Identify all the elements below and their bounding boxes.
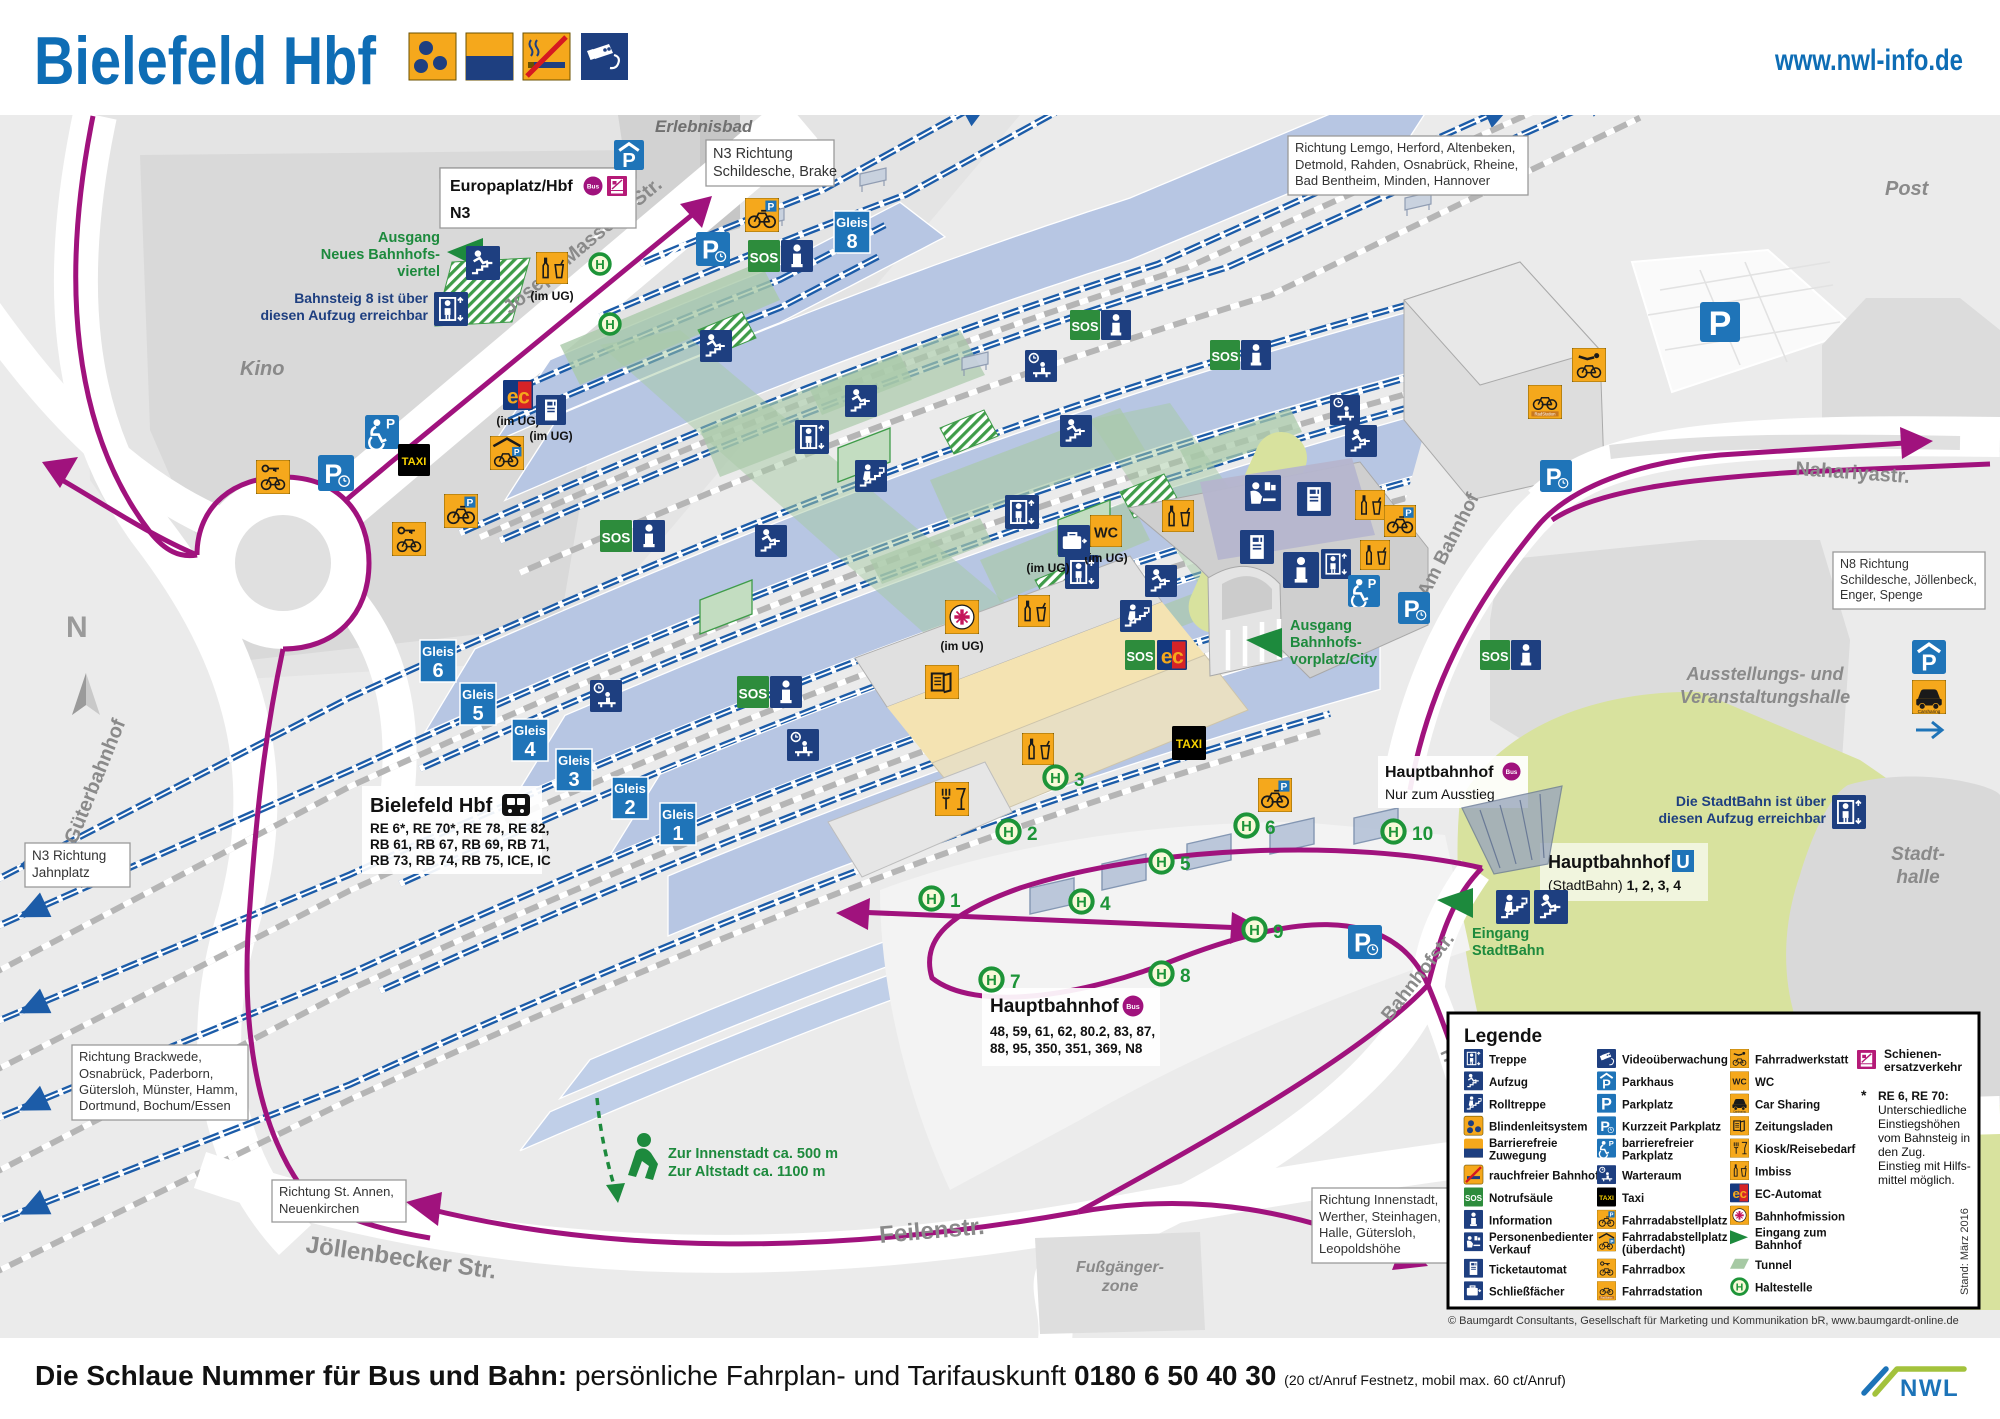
svg-text:6: 6	[1265, 818, 1276, 839]
svg-text:Ticketautomat: Ticketautomat	[1489, 1264, 1567, 1276]
svg-text:Bielefeld Hbf: Bielefeld Hbf	[370, 795, 493, 817]
svg-text:8: 8	[846, 231, 857, 253]
svg-text:Die StadtBahn ist über: Die StadtBahn ist über	[1676, 793, 1827, 809]
svg-text:Neuenkirchen: Neuenkirchen	[279, 1201, 359, 1216]
svg-text:Fahrradabstellplatz: Fahrradabstellplatz	[1622, 1232, 1728, 1244]
svg-text:EC-Automat: EC-Automat	[1755, 1189, 1822, 1201]
svg-text:Gleis: Gleis	[514, 723, 546, 738]
svg-text:WC: WC	[1755, 1077, 1774, 1089]
svg-text:Aufzug: Aufzug	[1489, 1077, 1528, 1089]
svg-text:Gleis: Gleis	[836, 215, 868, 230]
svg-text:Nur zum Ausstieg: Nur zum Ausstieg	[1385, 786, 1495, 802]
svg-text:© Baumgardt Consultants, Gesel: © Baumgardt Consultants, Gesellschaft fü…	[1448, 1315, 1959, 1327]
svg-text:Bahnhof: Bahnhof	[1755, 1240, 1802, 1252]
svg-text:4: 4	[524, 739, 536, 761]
svg-text:Zeitungsladen: Zeitungsladen	[1755, 1122, 1833, 1134]
svg-text:Legende: Legende	[1464, 1026, 1542, 1047]
svg-text:(im UG): (im UG)	[1026, 561, 1069, 575]
svg-text:Richtung Innenstadt,: Richtung Innenstadt,	[1319, 1192, 1438, 1207]
svg-text:Veranstaltungshalle: Veranstaltungshalle	[1680, 687, 1850, 707]
svg-text:Halle, Gütersloh,: Halle, Gütersloh,	[1319, 1225, 1416, 1240]
svg-text:Fußgänger-: Fußgänger-	[1076, 1259, 1164, 1276]
svg-text:www.nwl-info.de: www.nwl-info.de	[1774, 44, 1963, 77]
svg-text:zone: zone	[1101, 1278, 1139, 1295]
svg-text:Imbiss: Imbiss	[1755, 1167, 1791, 1179]
svg-text:Erlebnisbad: Erlebnisbad	[655, 117, 753, 136]
svg-text:Parkplatz: Parkplatz	[1622, 1151, 1673, 1163]
svg-text:Schildesche, Brake: Schildesche, Brake	[713, 164, 837, 180]
svg-text:mittel möglich.: mittel möglich.	[1878, 1173, 1955, 1187]
svg-text:Bahnsteig 8 ist über: Bahnsteig 8 ist über	[294, 290, 428, 306]
svg-text:Treppe: Treppe	[1489, 1055, 1527, 1067]
svg-text:(im UG): (im UG)	[530, 289, 573, 303]
svg-text:vorplatz/City: vorplatz/City	[1290, 652, 1377, 668]
svg-text:Gleis: Gleis	[422, 644, 454, 659]
svg-text:Eingang: Eingang	[1472, 926, 1529, 942]
svg-text:Hauptbahnhof: Hauptbahnhof	[990, 996, 1119, 1017]
svg-text:Hauptbahnhof: Hauptbahnhof	[1385, 764, 1494, 781]
svg-text:Eingang zum: Eingang zum	[1755, 1228, 1827, 1240]
svg-text:1: 1	[950, 891, 961, 912]
svg-text:Kiosk/Reisebedarf: Kiosk/Reisebedarf	[1755, 1144, 1856, 1156]
svg-text:10: 10	[1412, 824, 1433, 845]
svg-text:Leopoldshöhe: Leopoldshöhe	[1319, 1241, 1401, 1256]
svg-text:Notrufsäule: Notrufsäule	[1489, 1193, 1553, 1205]
svg-text:1: 1	[672, 823, 683, 845]
svg-text:5: 5	[472, 703, 483, 725]
svg-text:Schienen-: Schienen-	[1884, 1047, 1941, 1061]
svg-text:Fahrradabstellplatz: Fahrradabstellplatz	[1622, 1215, 1728, 1227]
svg-text:rauchfreier Bahnhof: rauchfreier Bahnhof	[1489, 1171, 1599, 1183]
svg-text:Bielefeld Hbf: Bielefeld Hbf	[34, 23, 376, 99]
svg-text:barrierefreier: barrierefreier	[1622, 1138, 1694, 1150]
svg-text:Fahrradstation: Fahrradstation	[1622, 1287, 1703, 1299]
svg-text:den Zug.: den Zug.	[1878, 1145, 1925, 1159]
svg-text:Schließfächer: Schließfächer	[1489, 1287, 1565, 1299]
svg-text:Barrierefreie: Barrierefreie	[1489, 1138, 1557, 1150]
svg-text:Tunnel: Tunnel	[1755, 1260, 1792, 1272]
svg-text:5: 5	[1180, 854, 1191, 875]
svg-text:(im UG): (im UG)	[940, 639, 983, 653]
svg-text:Parkhaus: Parkhaus	[1622, 1077, 1674, 1089]
svg-text:88, 95, 350, 351, 369, N8: 88, 95, 350, 351, 369, N8	[990, 1041, 1143, 1056]
svg-text:diesen Aufzug erreichbar: diesen Aufzug erreichbar	[1658, 810, 1826, 826]
svg-text:Einstieg mit Hilfs-: Einstieg mit Hilfs-	[1878, 1159, 1971, 1173]
svg-text:Bahnhofs-: Bahnhofs-	[1290, 635, 1362, 651]
svg-text:StadtBahn: StadtBahn	[1472, 943, 1545, 959]
svg-text:RE 6, RE 70:: RE 6, RE 70:	[1878, 1089, 1949, 1103]
svg-text:Hauptbahnhof: Hauptbahnhof	[1548, 852, 1671, 872]
svg-text:Warteraum: Warteraum	[1622, 1171, 1682, 1183]
svg-text:Ausgang: Ausgang	[1290, 618, 1352, 634]
svg-text:Zuwegung: Zuwegung	[1489, 1151, 1547, 1163]
svg-text:Haltestelle: Haltestelle	[1755, 1283, 1813, 1295]
svg-text:Osnabrück, Paderborn,: Osnabrück, Paderborn,	[79, 1066, 213, 1081]
svg-text:Jahnplatz: Jahnplatz	[32, 865, 90, 880]
svg-text:Einstiegshöhen: Einstiegshöhen	[1878, 1117, 1960, 1131]
svg-text:halle: halle	[1896, 867, 1940, 888]
svg-text:Car Sharing: Car Sharing	[1755, 1099, 1820, 1111]
svg-text:48, 59, 61, 62, 80.2, 83, 87,: 48, 59, 61, 62, 80.2, 83, 87,	[990, 1024, 1155, 1039]
svg-text:(im UG): (im UG)	[1084, 551, 1127, 565]
svg-text:N: N	[66, 611, 88, 644]
svg-text:9: 9	[1273, 922, 1284, 943]
svg-text:Personenbedienter: Personenbedienter	[1489, 1232, 1594, 1244]
svg-text:Parkplatz: Parkplatz	[1622, 1099, 1673, 1111]
svg-text:RB 73, RB 74, RB 75, ICE, IC: RB 73, RB 74, RB 75, ICE, IC	[370, 853, 551, 868]
svg-text:Gleis: Gleis	[614, 781, 646, 796]
svg-text:Unterschiedliche: Unterschiedliche	[1878, 1103, 1967, 1117]
svg-text:Kurzzeit Parkplatz: Kurzzeit Parkplatz	[1622, 1122, 1721, 1134]
svg-text:Europaplatz/Hbf: Europaplatz/Hbf	[450, 178, 573, 195]
svg-text:Richtung Lemgo, Herford, Alten: Richtung Lemgo, Herford, Altenbeken,	[1295, 140, 1515, 155]
svg-text:Stand: März 2016: Stand: März 2016	[1959, 1208, 1971, 1295]
svg-text:N3: N3	[450, 205, 471, 222]
svg-text:RB 61, RB 67, RB 69, RB 71,: RB 61, RB 67, RB 69, RB 71,	[370, 837, 549, 852]
svg-text:Gleis: Gleis	[662, 807, 694, 822]
svg-text:2: 2	[624, 797, 635, 819]
svg-text:2: 2	[1027, 824, 1038, 845]
svg-text:Ausstellungs- und: Ausstellungs- und	[1686, 664, 1845, 684]
svg-text:Rolltreppe: Rolltreppe	[1489, 1099, 1546, 1111]
svg-text:Taxi: Taxi	[1622, 1193, 1644, 1205]
svg-text:3: 3	[568, 769, 579, 791]
svg-text:*: *	[1861, 1087, 1867, 1103]
svg-text:Post: Post	[1885, 178, 1930, 200]
svg-text:Gütersloh, Münster, Hamm,: Gütersloh, Münster, Hamm,	[79, 1082, 238, 1097]
svg-text:Richtung Brackwede,: Richtung Brackwede,	[79, 1049, 202, 1064]
svg-text:N3 Richtung: N3 Richtung	[713, 146, 793, 162]
svg-text:Blindenleitsystem: Blindenleitsystem	[1489, 1122, 1587, 1134]
svg-text:(überdacht): (überdacht)	[1622, 1244, 1685, 1256]
svg-text:Verkauf: Verkauf	[1489, 1244, 1531, 1256]
svg-text:Kino: Kino	[240, 358, 284, 380]
svg-text:Stadt-: Stadt-	[1891, 844, 1945, 865]
svg-text:Zur Altstadt ca. 1100 m: Zur Altstadt ca. 1100 m	[668, 1164, 825, 1180]
svg-text:Gleis: Gleis	[462, 687, 494, 702]
svg-text:Detmold, Rahden, Osnabrück, Rh: Detmold, Rahden, Osnabrück, Rheine,	[1295, 157, 1518, 172]
svg-text:3: 3	[1074, 770, 1085, 791]
svg-text:Neues Bahnhofs-: Neues Bahnhofs-	[321, 247, 440, 263]
svg-text:Fahrradwerkstatt: Fahrradwerkstatt	[1755, 1055, 1848, 1067]
svg-text:NWL: NWL	[1900, 1375, 1959, 1402]
svg-text:N3 Richtung: N3 Richtung	[32, 848, 106, 863]
svg-text:Enger, Spenge: Enger, Spenge	[1840, 588, 1923, 602]
svg-text:ersatzverkehr: ersatzverkehr	[1884, 1060, 1962, 1074]
svg-text:(im UG): (im UG)	[496, 414, 539, 428]
svg-text:Richtung St. Annen,: Richtung St. Annen,	[279, 1184, 394, 1199]
svg-text:Ausgang: Ausgang	[378, 230, 440, 246]
svg-text:Videoüberwachung: Videoüberwachung	[1622, 1055, 1728, 1067]
svg-text:Dortmund, Bochum/Essen: Dortmund, Bochum/Essen	[79, 1098, 231, 1113]
svg-text:(im UG): (im UG)	[529, 429, 572, 443]
svg-text:viertel: viertel	[397, 264, 440, 280]
svg-text:RE 6*, RE 70*, RE 78, RE 82,: RE 6*, RE 70*, RE 78, RE 82,	[370, 821, 549, 836]
svg-text:Fahrradbox: Fahrradbox	[1622, 1264, 1686, 1276]
svg-text:4: 4	[1100, 894, 1111, 915]
svg-text:7: 7	[1010, 972, 1021, 993]
svg-text:vom Bahnsteig in: vom Bahnsteig in	[1878, 1131, 1970, 1145]
svg-text:6: 6	[432, 660, 443, 682]
svg-text:8: 8	[1180, 966, 1191, 987]
svg-text:(StadtBahn) 1, 2, 3, 4: (StadtBahn) 1, 2, 3, 4	[1548, 877, 1681, 893]
svg-text:N8 Richtung: N8 Richtung	[1840, 557, 1909, 571]
svg-text:Gleis: Gleis	[558, 753, 590, 768]
svg-text:Zur Innenstadt ca. 500 m: Zur Innenstadt ca. 500 m	[668, 1146, 838, 1162]
svg-text:Werther, Steinhagen,: Werther, Steinhagen,	[1319, 1209, 1441, 1224]
svg-text:Bad Bentheim, Minden, Hannover: Bad Bentheim, Minden, Hannover	[1295, 173, 1491, 188]
svg-text:diesen Aufzug erreichbar: diesen Aufzug erreichbar	[260, 307, 428, 323]
svg-text:Bahnhofmission: Bahnhofmission	[1755, 1211, 1845, 1223]
svg-text:Information: Information	[1489, 1215, 1552, 1227]
svg-text:Schildesche, Jöllenbeck,: Schildesche, Jöllenbeck,	[1840, 573, 1977, 587]
